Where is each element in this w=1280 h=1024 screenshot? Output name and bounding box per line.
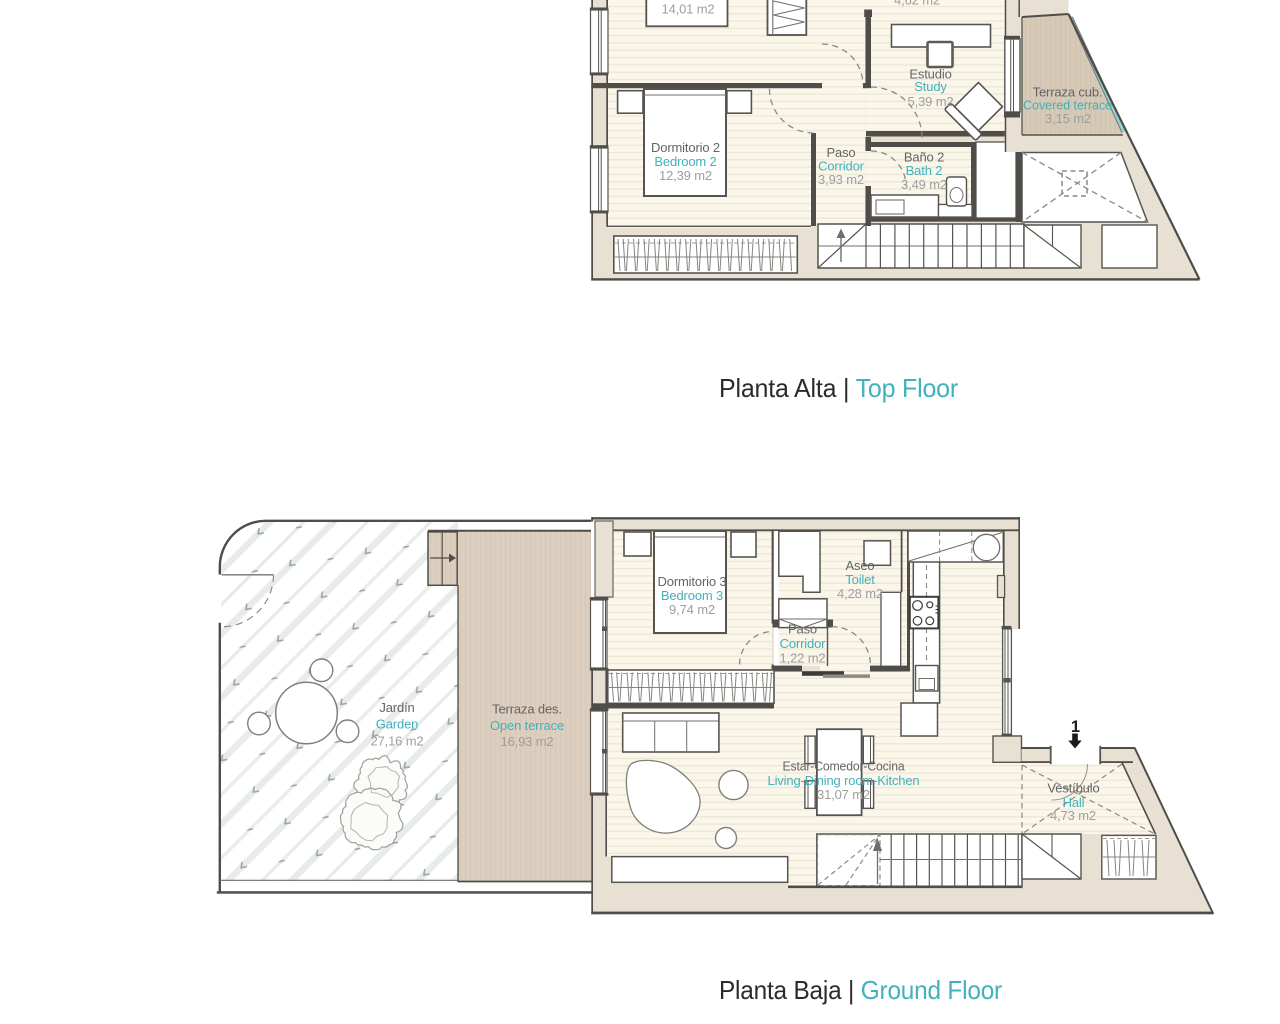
svg-text:Bedroom 3: Bedroom 3 — [661, 588, 723, 603]
svg-text:3,15 m2: 3,15 m2 — [1045, 111, 1091, 126]
svg-text:Planta Alta | Top Floor: Planta Alta | Top Floor — [719, 373, 959, 403]
svg-text:Garden: Garden — [376, 717, 418, 732]
svg-text:Aseo: Aseo — [845, 558, 874, 573]
svg-text:Corridor: Corridor — [780, 636, 827, 651]
svg-text:4,62 m2: 4,62 m2 — [894, 0, 940, 8]
svg-text:Paso: Paso — [788, 622, 817, 637]
svg-text:Vestíbulo: Vestíbulo — [1047, 781, 1099, 796]
svg-text:Bath 2: Bath 2 — [906, 163, 943, 178]
svg-text:Open terrace: Open terrace — [490, 718, 564, 733]
svg-text:3,49 m2: 3,49 m2 — [901, 177, 947, 192]
svg-text:12,39 m2: 12,39 m2 — [659, 168, 712, 183]
svg-text:31,07 m2: 31,07 m2 — [817, 787, 870, 802]
svg-text:16,93 m2: 16,93 m2 — [500, 734, 553, 749]
svg-text:27,16 m2: 27,16 m2 — [370, 734, 423, 749]
svg-text:4,28 m2: 4,28 m2 — [837, 586, 883, 601]
svg-text:Living-Dining room-Kitchen: Living-Dining room-Kitchen — [768, 773, 920, 788]
svg-text:1: 1 — [1071, 718, 1080, 736]
svg-text:Dormitorio 2: Dormitorio 2 — [651, 140, 720, 155]
svg-text:14,01 m2: 14,01 m2 — [661, 2, 714, 17]
svg-text:Terraza des.: Terraza des. — [492, 702, 562, 717]
svg-text:3,93 m2: 3,93 m2 — [818, 172, 864, 187]
svg-text:Estar-Comedor-Cocina: Estar-Comedor-Cocina — [783, 759, 906, 774]
svg-text:Jardín: Jardín — [379, 700, 414, 715]
svg-text:Study: Study — [914, 79, 947, 94]
svg-text:Toilet: Toilet — [845, 572, 875, 587]
svg-text:Bedroom 2: Bedroom 2 — [654, 154, 716, 169]
svg-text:9,74 m2: 9,74 m2 — [669, 602, 715, 617]
svg-text:Planta Baja | Ground Floor: Planta Baja | Ground Floor — [719, 975, 1002, 1005]
svg-text:Dormitorio 3: Dormitorio 3 — [658, 574, 727, 589]
svg-text:1,22 m2: 1,22 m2 — [780, 651, 826, 666]
svg-text:5,39 m2: 5,39 m2 — [908, 94, 954, 109]
